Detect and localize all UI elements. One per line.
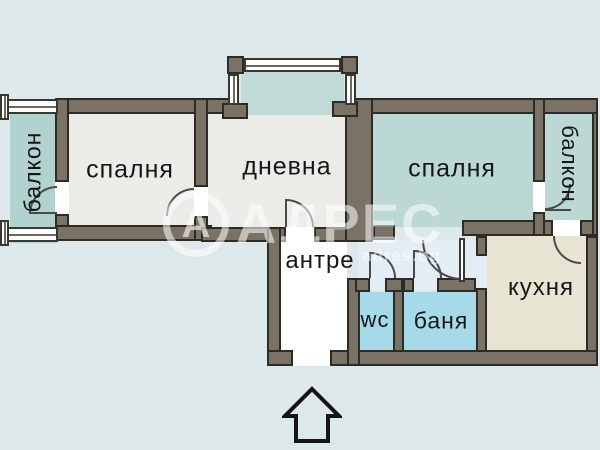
corridor-kitchen-passage — [476, 256, 487, 288]
floor-plan: балкон спалня дневна спалня балкон антре… — [0, 0, 600, 450]
window — [228, 74, 239, 105]
wall-segment — [55, 225, 212, 241]
door-opening — [533, 182, 545, 212]
label-kitchen: кухня — [508, 274, 574, 302]
label-bathroom: баня — [414, 308, 469, 335]
window-mullion — [246, 65, 339, 67]
door-opening — [55, 182, 69, 214]
window-mullion — [350, 76, 352, 103]
wall-segment — [385, 278, 403, 292]
door-opening — [194, 187, 208, 216]
window — [6, 99, 58, 114]
wall-segment — [533, 212, 545, 236]
door-leaf — [545, 209, 571, 211]
wall-segment — [222, 103, 248, 119]
wall-segment — [353, 98, 598, 114]
wall-segment — [437, 278, 476, 292]
wall-segment — [403, 278, 414, 292]
window — [345, 74, 356, 105]
wall-segment — [476, 236, 487, 256]
entrance-arrow-icon — [282, 386, 342, 444]
wall-segment — [592, 112, 598, 236]
window-mullion — [8, 106, 56, 108]
label-bedroom-left: спалня — [86, 156, 174, 185]
window — [6, 227, 58, 242]
wall-segment — [330, 350, 598, 366]
door-opening — [553, 220, 580, 236]
wall-segment — [373, 225, 395, 240]
wall-segment — [393, 288, 404, 352]
door-leaf — [413, 250, 415, 278]
door-leaf — [369, 252, 371, 278]
wall-segment — [533, 98, 545, 182]
wall-segment — [314, 227, 347, 242]
wall-post — [227, 56, 244, 74]
label-living: дневна — [242, 153, 331, 182]
label-bedroom-right: спалня — [408, 155, 496, 184]
wall-post — [341, 56, 358, 74]
door-opening — [286, 227, 314, 242]
room-balcony-top — [241, 70, 344, 115]
door-leaf — [459, 238, 465, 282]
wall-segment — [194, 98, 208, 187]
window-mullion — [8, 234, 56, 236]
entrance-opening — [293, 350, 330, 366]
wall-segment — [267, 227, 281, 366]
wall-segment — [476, 288, 487, 352]
window-mullion — [233, 76, 235, 103]
wall-segment — [586, 236, 598, 366]
wall-segment — [355, 278, 370, 292]
wall-segment — [345, 98, 373, 242]
window — [0, 220, 9, 246]
label-wc: wc — [361, 307, 390, 333]
door-leaf — [285, 199, 287, 227]
wall-segment — [267, 350, 293, 366]
window-mullion — [4, 222, 6, 244]
window-mullion — [4, 96, 6, 118]
label-balcony-left: балкон — [20, 132, 47, 213]
label-balcony-right: балкон — [556, 125, 582, 202]
window — [0, 94, 9, 120]
window — [244, 58, 341, 72]
label-hallway: антре — [285, 247, 354, 275]
